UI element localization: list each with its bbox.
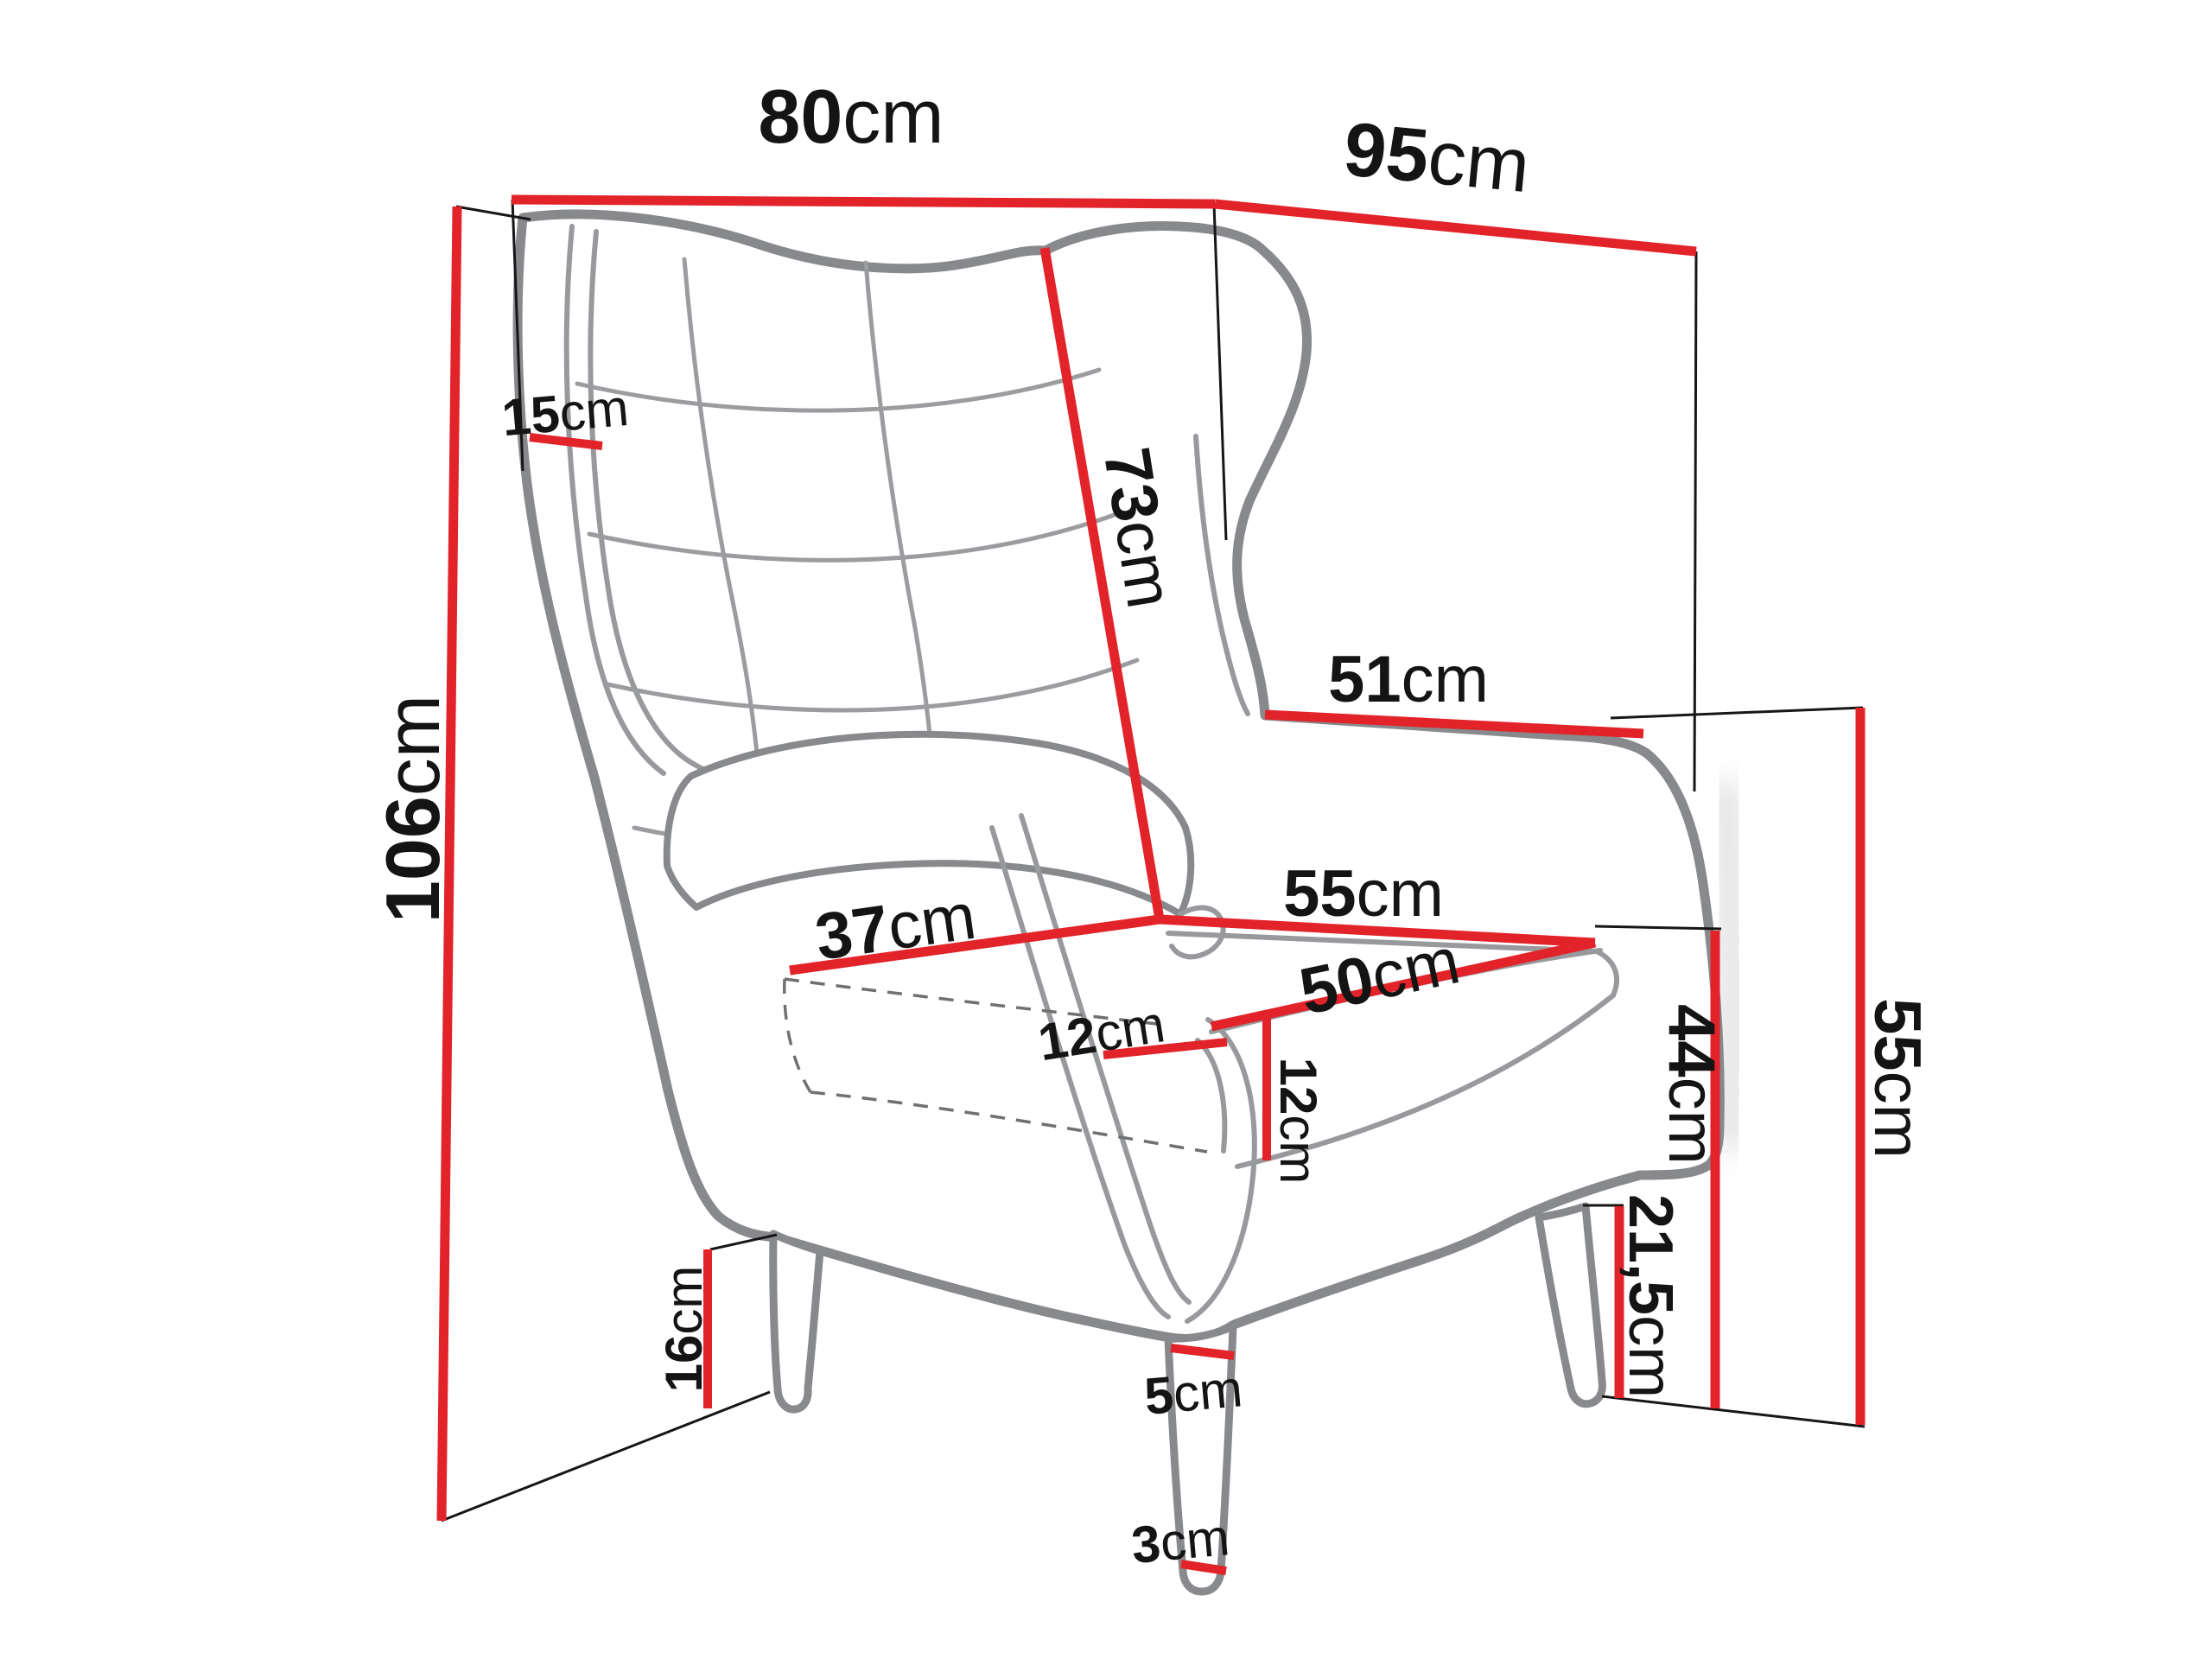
floor-line-right (1602, 1396, 1865, 1427)
label-leg-top-width: 5cm (1142, 1359, 1245, 1426)
label-top-depth: 95cm (1340, 105, 1534, 208)
dim-line-top-width (512, 200, 1215, 204)
back-right-leg (1539, 1206, 1602, 1404)
label-top-width: 80cm (758, 73, 944, 159)
label-back-leg-height: 16cm (655, 1266, 713, 1393)
label-seat-width: 55cm (1283, 857, 1444, 931)
label-front-leg-height: 21,5cm (1616, 1194, 1685, 1398)
label-cushion-height: 12cm (1269, 1058, 1327, 1185)
dim-line-top-depth (1215, 204, 1696, 251)
label-leg-bottom-width: 3cm (1129, 1508, 1232, 1574)
label-total-height: 106cm (370, 695, 455, 923)
floor-line-left (442, 1392, 770, 1521)
label-arm-top-depth: 51cm (1328, 643, 1489, 716)
label-armrest-height: 55cm (1860, 998, 1934, 1159)
ext-depth-right (1694, 251, 1696, 791)
ext-height-top (456, 207, 531, 219)
back-left-leg (773, 1234, 820, 1409)
ext-back-leg-top (710, 1235, 777, 1249)
label-wing-depth: 15cm (499, 378, 631, 448)
armchair-dimensions-diagram: 80cm 95cm 106cm 15cm 73cm 51cm 37cm 55cm… (0, 0, 2212, 1659)
diagram-canvas: 80cm 95cm 106cm 15cm 73cm 51cm 37cm 55cm… (0, 0, 2212, 1659)
label-seat-height: 44cm (1655, 1004, 1728, 1165)
ext-armrest-top (1611, 708, 1863, 718)
